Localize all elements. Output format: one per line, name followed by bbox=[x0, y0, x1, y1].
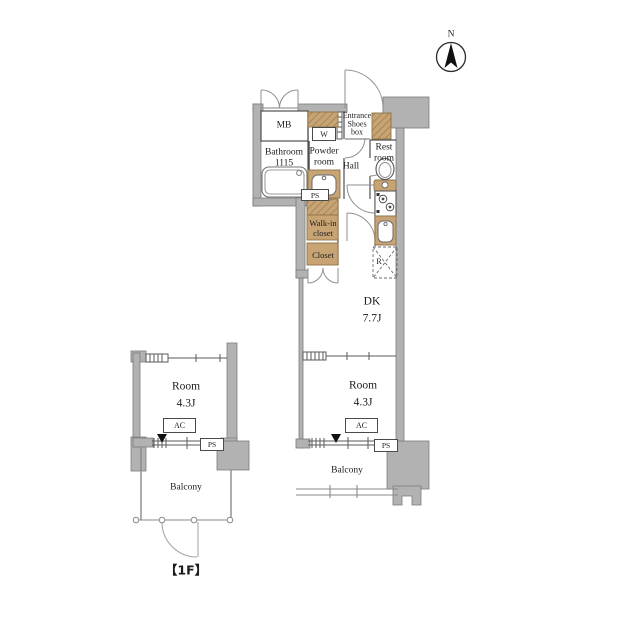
mb-double-door bbox=[261, 90, 298, 108]
shoes-box bbox=[372, 113, 391, 139]
ps-box-top: PS bbox=[301, 189, 329, 201]
room-label-powder-room: Powder room bbox=[309, 147, 338, 170]
room-label-room-right: Room 4.3J bbox=[349, 377, 377, 410]
label-ac: AC bbox=[356, 421, 367, 430]
kitchen-sink-icon bbox=[375, 216, 396, 245]
ps-box-left: PS bbox=[200, 438, 224, 451]
room-label-balcony-left: Balcony bbox=[170, 482, 202, 493]
stove-icon bbox=[375, 191, 396, 216]
room-label-rest-room: Rest room bbox=[374, 143, 394, 166]
ps-box-right: PS bbox=[374, 439, 398, 452]
balcony-gate-door bbox=[162, 522, 198, 557]
label-ps: PS bbox=[208, 440, 216, 449]
floor-plan-canvas: N MB Entrance Shoes box Bathroom 1115 Po… bbox=[0, 0, 640, 639]
washer-space bbox=[308, 112, 338, 127]
room-label-shoes-box: Shoes box bbox=[347, 121, 366, 138]
washer-label-box: W bbox=[312, 127, 336, 141]
room-label-balcony-right: Balcony bbox=[331, 465, 363, 476]
ac-box-left: AC bbox=[163, 418, 196, 433]
ac-box-right: AC bbox=[345, 418, 378, 433]
label-ac: AC bbox=[174, 421, 185, 430]
room-label-mb: MB bbox=[277, 120, 292, 131]
compass-north-label: N bbox=[448, 29, 455, 40]
floor-label: 【1F】 bbox=[165, 563, 207, 578]
entrance-door bbox=[345, 70, 383, 108]
room-label-dk: DK 7.7J bbox=[363, 293, 382, 326]
room-label-bathroom: Bathroom 1115 bbox=[265, 148, 303, 171]
room-label-walk-in-closet: Walk-in closet bbox=[309, 218, 336, 238]
dk-room-partition bbox=[303, 352, 396, 360]
room-label-closet: Closet bbox=[312, 250, 334, 260]
label-washer: W bbox=[320, 130, 328, 139]
label-refrigerator: R bbox=[376, 257, 381, 267]
powder-room-door bbox=[345, 138, 365, 158]
left-balcony-fence bbox=[133, 517, 233, 523]
compass-icon bbox=[437, 43, 466, 72]
hall-corridor-door bbox=[347, 185, 375, 213]
label-ps: PS bbox=[382, 441, 390, 450]
label-ps: PS bbox=[311, 191, 319, 200]
room-label-room-left: Room 4.3J bbox=[172, 378, 200, 411]
closet-double-door bbox=[308, 268, 338, 283]
floor-plan-drawing bbox=[0, 0, 640, 639]
dk-door bbox=[347, 213, 375, 241]
left-room-top-window bbox=[146, 354, 227, 362]
right-balcony-railing bbox=[296, 485, 398, 498]
window-marker-icon bbox=[331, 434, 341, 443]
room-label-hall: Hall bbox=[343, 161, 359, 172]
